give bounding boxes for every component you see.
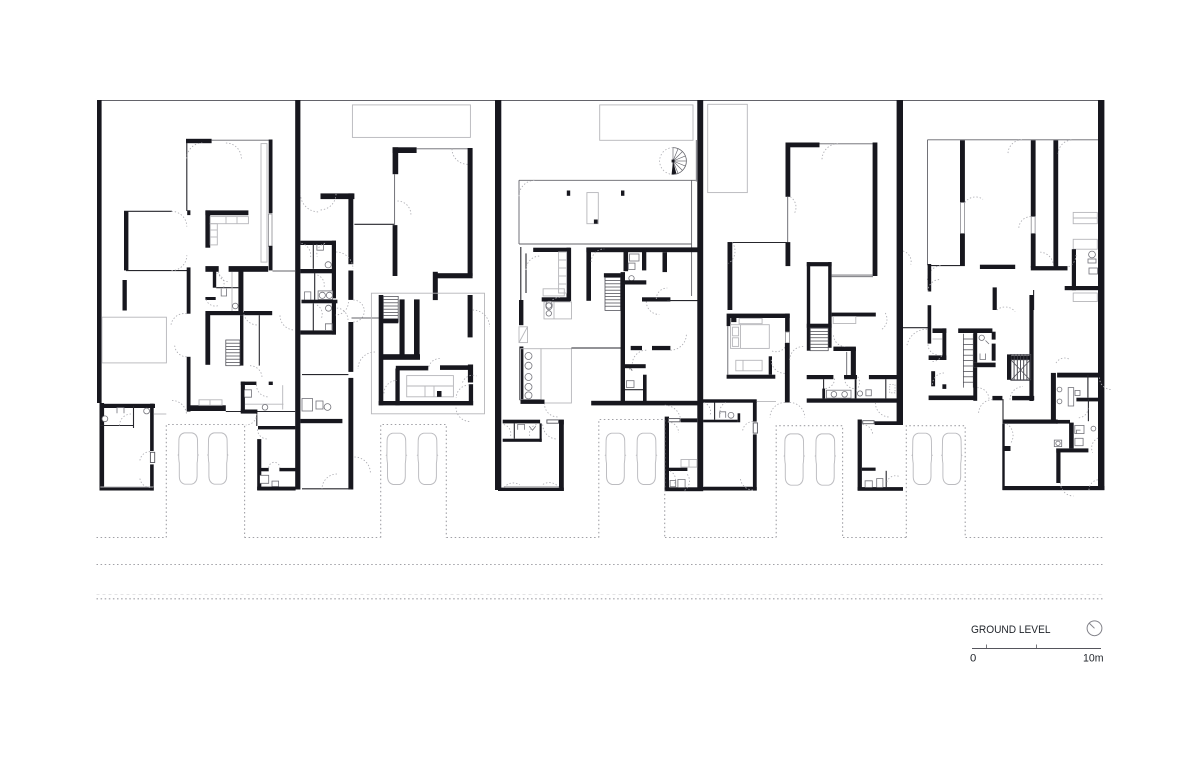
svg-text:GROUND LEVEL: GROUND LEVEL [971, 624, 1051, 636]
svg-text:0: 0 [970, 653, 976, 665]
svg-text:10m: 10m [1083, 653, 1104, 665]
